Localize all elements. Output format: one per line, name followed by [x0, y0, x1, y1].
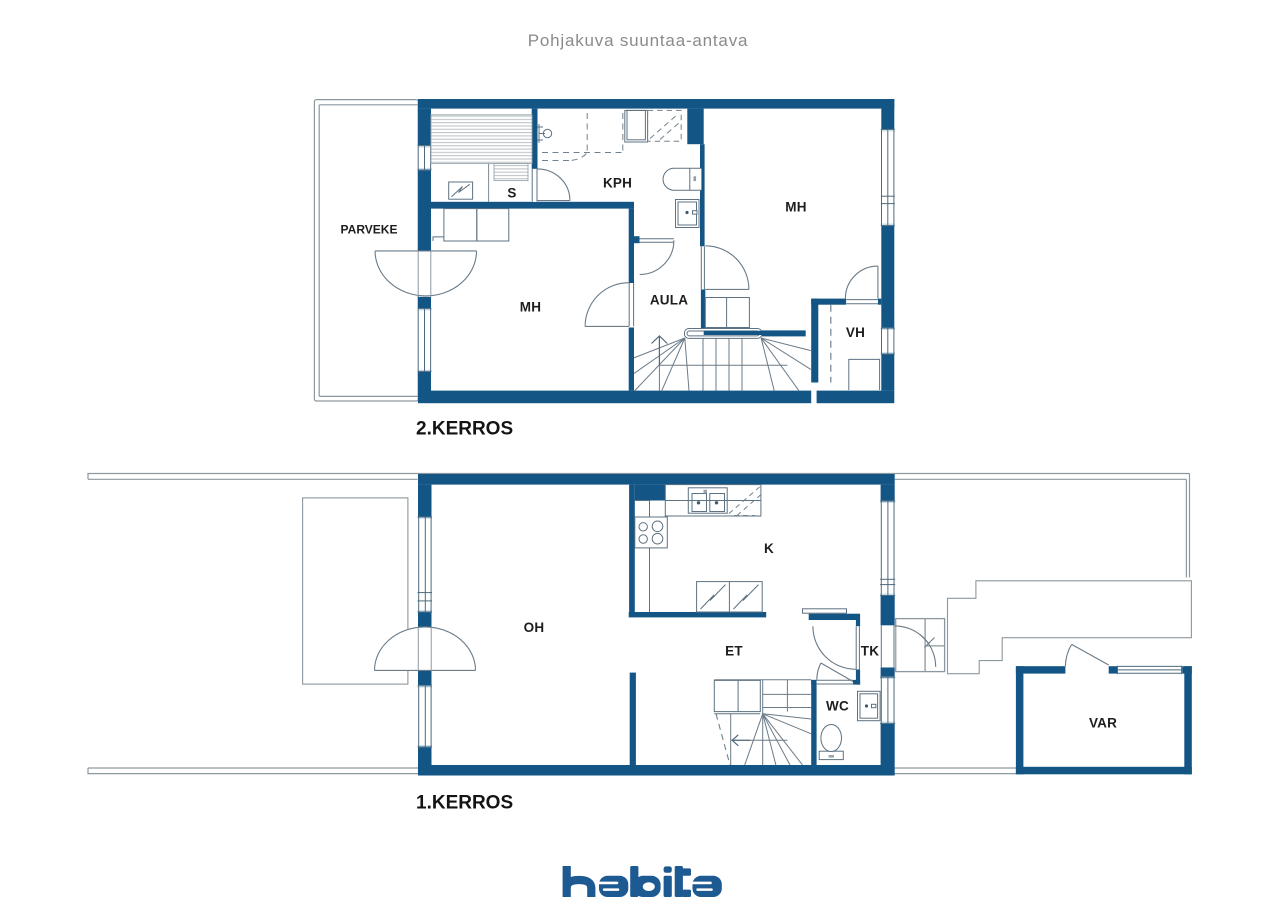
svg-text:ET: ET — [725, 644, 743, 659]
svg-text:OH: OH — [524, 620, 545, 635]
svg-text:WC: WC — [826, 698, 849, 713]
svg-text:K: K — [764, 541, 774, 556]
svg-text:MH: MH — [520, 300, 541, 315]
svg-text:Pohjakuva suuntaa-antava: Pohjakuva suuntaa-antava — [528, 31, 749, 50]
svg-text:PARVEKE: PARVEKE — [341, 223, 398, 237]
svg-text:2.KERROS: 2.KERROS — [416, 419, 513, 440]
svg-text:MH: MH — [785, 200, 806, 215]
svg-text:S: S — [507, 186, 516, 201]
svg-text:VAR: VAR — [1089, 716, 1117, 731]
svg-text:1.KERROS: 1.KERROS — [416, 793, 513, 814]
svg-text:KPH: KPH — [603, 176, 632, 191]
svg-text:VH: VH — [846, 325, 865, 340]
svg-text:TK: TK — [861, 644, 879, 659]
svg-text:AULA: AULA — [650, 293, 688, 308]
